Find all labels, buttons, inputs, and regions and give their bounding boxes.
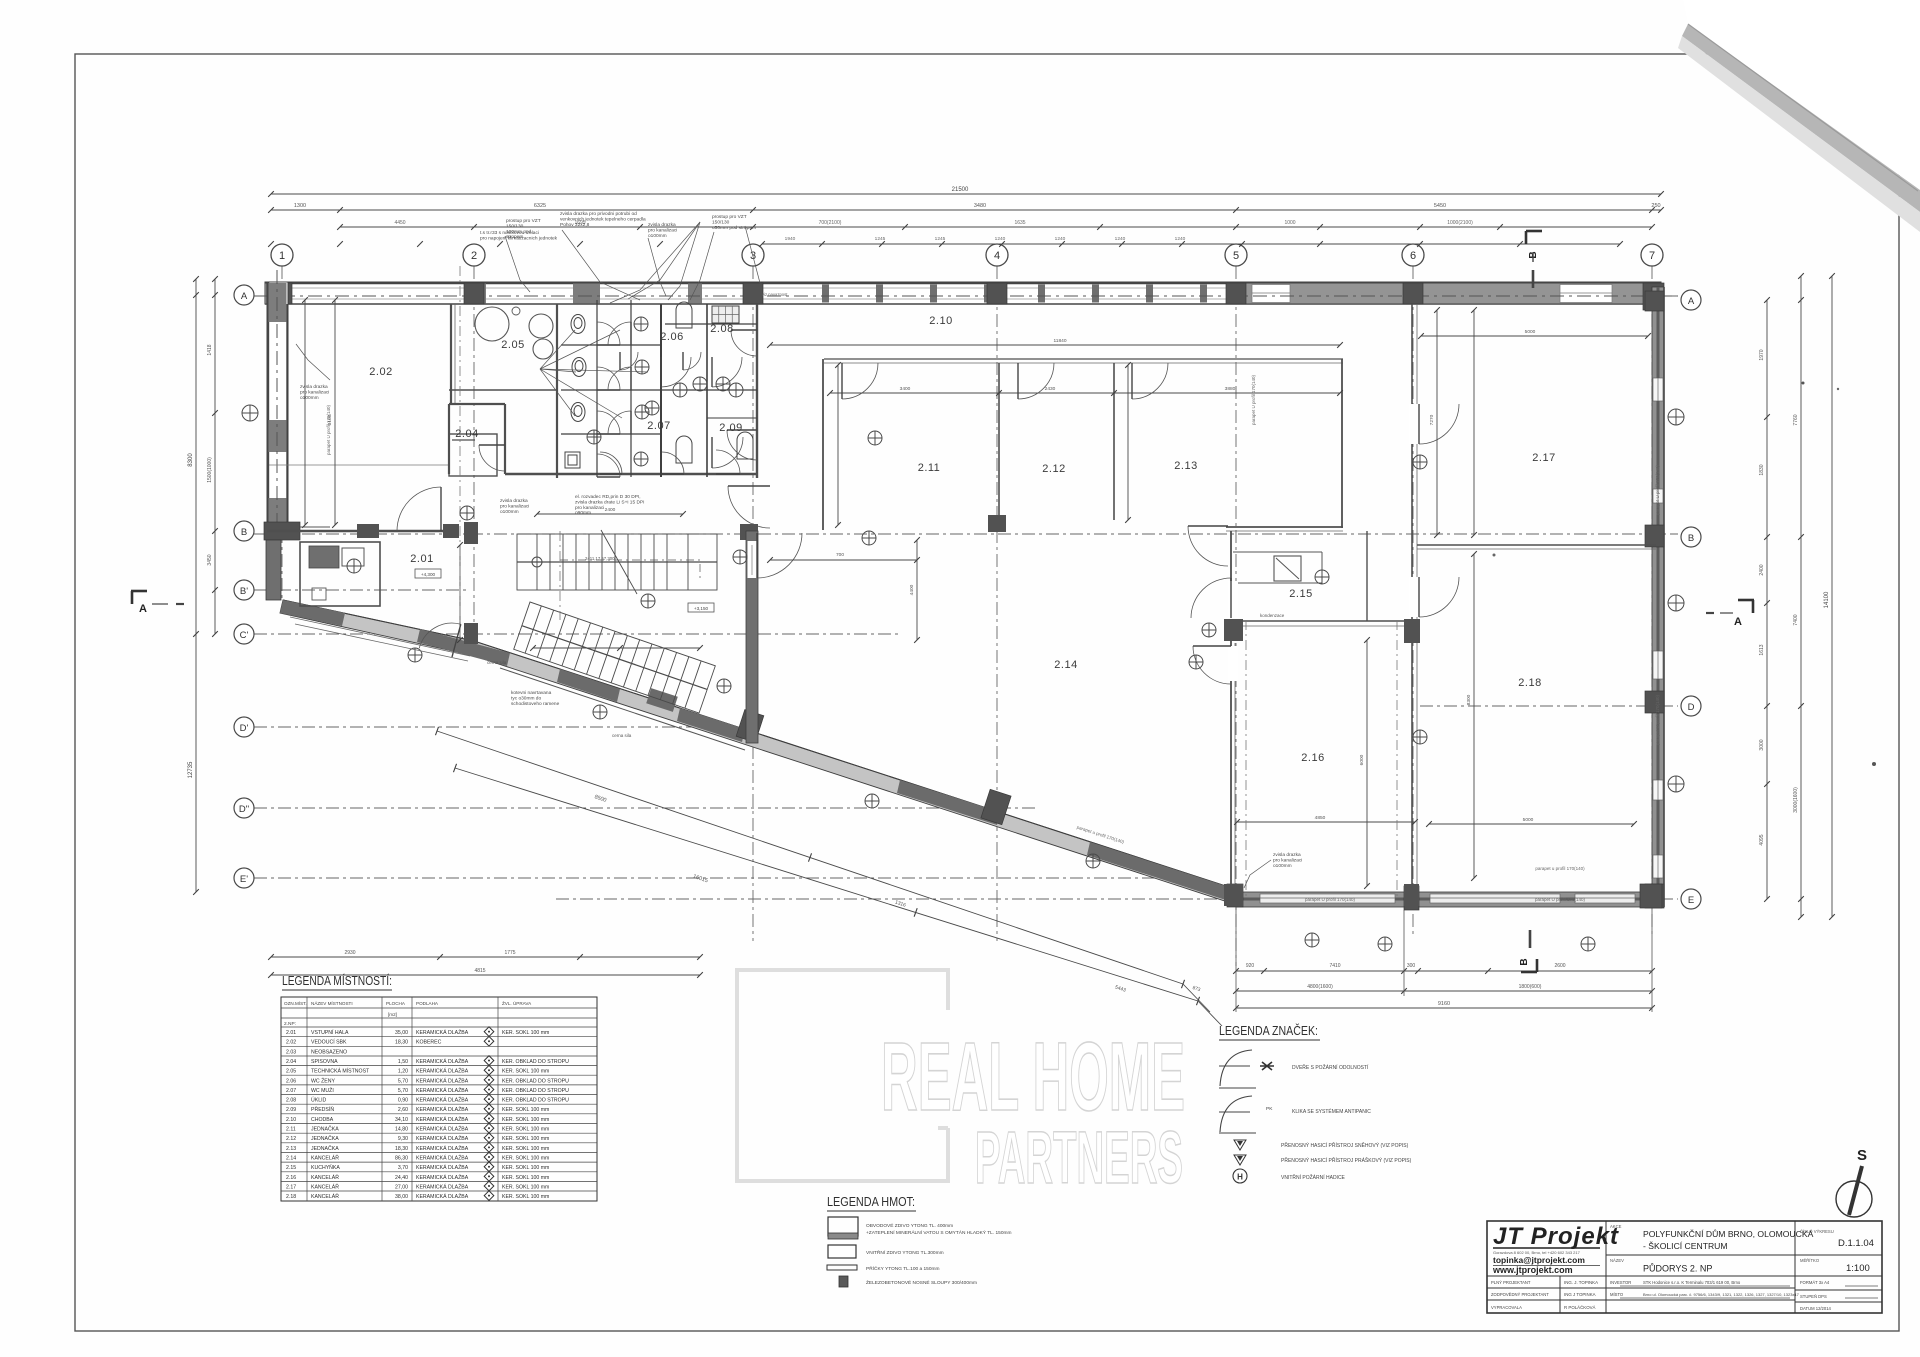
svg-text:KER. OBKLAD DO STROPU: KER. OBKLAD DO STROPU — [502, 1078, 569, 1084]
svg-text:o100mm: o100mm — [300, 395, 319, 401]
svg-text:KER. SOKL 100 mm: KER. SOKL 100 mm — [502, 1030, 549, 1036]
svg-text:1,20: 1,20 — [398, 1069, 408, 1075]
svg-text:86,30: 86,30 — [395, 1155, 408, 1161]
svg-text:zvisla drazka: zvisla drazka — [1273, 852, 1301, 858]
svg-text:2.06: 2.06 — [660, 331, 683, 343]
svg-text:FORMÁT 3x A4: FORMÁT 3x A4 — [1800, 1280, 1830, 1285]
svg-text:2.10: 2.10 — [286, 1117, 296, 1123]
svg-text:KER. SOKL 100 mm: KER. SOKL 100 mm — [502, 1136, 549, 1142]
svg-text:2.13: 2.13 — [1174, 460, 1197, 472]
svg-text:D": D" — [239, 804, 249, 815]
svg-text:AKCE: AKCE — [1610, 1224, 1622, 1229]
svg-text:pro kanalizaci: pro kanalizaci — [1273, 857, 1302, 863]
svg-text:2.09: 2.09 — [719, 422, 742, 434]
svg-text:C': C' — [240, 630, 249, 641]
svg-text:D: D — [1688, 702, 1695, 713]
svg-text:A: A — [139, 603, 147, 615]
svg-text:B: B — [1519, 958, 1530, 965]
svg-text:B: B — [1688, 533, 1694, 544]
svg-text:KER. OBKLAD DO STROPU: KER. OBKLAD DO STROPU — [502, 1098, 569, 1104]
svg-text:3000: 3000 — [1759, 739, 1765, 750]
svg-text:2.NP:: 2.NP: — [284, 1021, 296, 1027]
svg-text:1635: 1635 — [1014, 220, 1025, 226]
svg-text:Brno ul. Olomoucká parc. č. 97: Brno ul. Olomoucká parc. č. 9756/6, 1343… — [1643, 1292, 1800, 1297]
svg-text:KERAMICKÁ DLAŽBA: KERAMICKÁ DLAŽBA — [416, 1182, 469, 1190]
svg-text:kondenzace: kondenzace — [1260, 613, 1285, 618]
svg-text:KERAMICKÁ DLAŽBA: KERAMICKÁ DLAŽBA — [416, 1144, 469, 1152]
svg-text:5: 5 — [1233, 250, 1239, 262]
svg-text:0,90: 0,90 — [398, 1098, 408, 1104]
svg-text:KERAMICKÁ DLAŽBA: KERAMICKÁ DLAŽBA — [416, 1134, 469, 1142]
svg-text:2411,17,57,300: 2411,17,57,300 — [585, 556, 615, 561]
svg-text:4800(1600): 4800(1600) — [1307, 984, 1333, 990]
svg-text:2.04: 2.04 — [286, 1059, 296, 1065]
svg-text:5000: 5000 — [1523, 817, 1534, 823]
svg-text:2.01: 2.01 — [410, 553, 433, 565]
svg-text:5,70: 5,70 — [398, 1078, 408, 1084]
svg-text:parapet U profil 170(140): parapet U profil 170(140) — [1655, 694, 1660, 745]
svg-text:KER. SOKL 100 mm: KER. SOKL 100 mm — [502, 1117, 549, 1123]
svg-text:5000: 5000 — [1525, 329, 1536, 335]
svg-text:+ZATEPLENÍ MINERÁLNÍ VATOU S O: +ZATEPLENÍ MINERÁLNÍ VATOU S OMYTÁN HLAD… — [866, 1229, 1012, 1236]
svg-text:2.10: 2.10 — [929, 315, 952, 327]
svg-text:1,50: 1,50 — [398, 1059, 408, 1065]
svg-text:2.04: 2.04 — [455, 428, 478, 440]
svg-text:DVEŘE S POŽÁRNÍ ODOLNOSTÍ: DVEŘE S POŽÁRNÍ ODOLNOSTÍ — [1292, 1063, 1369, 1071]
svg-text:S: S — [1857, 1147, 1867, 1164]
svg-text:viz.navaznost: viz.navaznost — [762, 292, 788, 297]
svg-text:6: 6 — [1410, 250, 1416, 262]
svg-text:4: 4 — [994, 250, 1000, 262]
svg-text:7270: 7270 — [1429, 414, 1435, 425]
svg-text:R POLÁČKOVÁ: R POLÁČKOVÁ — [1564, 1305, 1596, 1310]
svg-text:14,80: 14,80 — [395, 1127, 408, 1133]
svg-text:6000: 6000 — [1359, 754, 1365, 765]
svg-text:11840: 11840 — [1054, 338, 1067, 344]
svg-text:2.18: 2.18 — [286, 1194, 296, 1200]
svg-text:7400: 7400 — [1793, 614, 1799, 625]
svg-text:KER. SOKL 100 mm: KER. SOKL 100 mm — [502, 1146, 549, 1152]
svg-text:INVESTOR: INVESTOR — [1610, 1280, 1631, 1285]
svg-text:A: A — [241, 291, 248, 302]
svg-text:+4,300: +4,300 — [421, 572, 436, 577]
svg-text:1240: 1240 — [1115, 236, 1126, 242]
svg-text:2.05: 2.05 — [286, 1069, 296, 1075]
svg-text:JEDNAČKA: JEDNAČKA — [311, 1126, 339, 1133]
svg-text:zvisla drazka: zvisla drazka — [648, 222, 676, 228]
svg-text:1:100: 1:100 — [1846, 1263, 1870, 1274]
svg-text:2.11: 2.11 — [918, 462, 941, 474]
svg-text:D': D' — [240, 723, 249, 734]
svg-text:STK Hodonice s.r.o. K Termina: STK Hodonice s.r.o. K Terminalu 703/1 61… — [1643, 1280, 1741, 1285]
svg-text:VSTUPNÍ HALA: VSTUPNÍ HALA — [311, 1029, 349, 1036]
svg-text:NÁZEV: NÁZEV — [1610, 1258, 1624, 1263]
svg-text:150/130: 150/130 — [712, 219, 730, 225]
svg-text:o100mm: o100mm — [1273, 863, 1292, 869]
svg-text:2.16: 2.16 — [286, 1175, 296, 1181]
svg-text:2.15: 2.15 — [286, 1165, 296, 1171]
svg-text:4095: 4095 — [1759, 834, 1765, 845]
svg-text:3,70: 3,70 — [398, 1165, 408, 1171]
svg-text:pro kanalizaci: pro kanalizaci — [648, 227, 677, 233]
svg-text:1000: 1000 — [1284, 220, 1295, 226]
svg-text:1970: 1970 — [1759, 349, 1765, 360]
svg-text:7: 7 — [1649, 250, 1655, 262]
svg-text:MÍSTO: MÍSTO — [1610, 1292, 1624, 1297]
svg-text:ÚKLID: ÚKLID — [311, 1097, 327, 1104]
svg-text:1240: 1240 — [1055, 236, 1066, 242]
svg-text:18,30: 18,30 — [395, 1146, 408, 1152]
svg-text:2.18: 2.18 — [1518, 677, 1541, 689]
svg-text:POLYFUNKČNÍ DŮM BRNO, OLOMOUCK: POLYFUNKČNÍ DŮM BRNO, OLOMOUCKÁ — [1643, 1228, 1814, 1239]
svg-text:1240: 1240 — [1175, 236, 1186, 242]
svg-text:1: 1 — [279, 250, 285, 262]
svg-text:PŘENOSNÝ HASICÍ PŘÍSTROJ PRÁŠK: PŘENOSNÝ HASICÍ PŘÍSTROJ PRÁŠKOVÝ (VIZ P… — [1281, 1156, 1412, 1164]
svg-text:KERAMICKÁ DLAŽBA: KERAMICKÁ DLAŽBA — [416, 1086, 469, 1094]
svg-text:topinka@jtprojekt.com: topinka@jtprojekt.com — [1493, 1255, 1585, 1265]
svg-text:2.17: 2.17 — [1532, 452, 1555, 464]
svg-text:2.07: 2.07 — [647, 420, 670, 432]
svg-text:KERAMICKÁ DLAŽBA: KERAMICKÁ DLAŽBA — [416, 1125, 469, 1133]
svg-text:3450: 3450 — [207, 554, 213, 565]
svg-text:DATUM 12/2014: DATUM 12/2014 — [1800, 1306, 1832, 1311]
svg-text:250: 250 — [1651, 203, 1660, 209]
svg-text:KER. SOKL 100 mm: KER. SOKL 100 mm — [502, 1175, 549, 1181]
svg-text:2.17: 2.17 — [286, 1184, 296, 1190]
svg-text:1240: 1240 — [995, 236, 1006, 242]
svg-text:prostup pro VZT: prostup pro VZT — [712, 214, 747, 220]
svg-text:zvisla drazka drate Li S+i 15: zvisla drazka drate Li S+i 15 DPI — [575, 499, 644, 505]
svg-text:WC MUŽI: WC MUŽI — [311, 1086, 334, 1094]
svg-text:2.09: 2.09 — [286, 1107, 296, 1113]
svg-text:8300: 8300 — [1466, 694, 1472, 705]
svg-text:LEGENDA ZNAČEK:: LEGENDA ZNAČEK: — [1219, 1023, 1318, 1038]
svg-text:2400: 2400 — [1759, 564, 1765, 575]
svg-text:7410: 7410 — [1329, 963, 1340, 969]
svg-text:150/130: 150/130 — [506, 223, 524, 229]
svg-text:CHODBA: CHODBA — [311, 1117, 334, 1123]
svg-text:PLOCHA: PLOCHA — [386, 1001, 406, 1006]
svg-text:2.08: 2.08 — [286, 1098, 296, 1104]
svg-text:KERAMICKÁ DLAŽBA: KERAMICKÁ DLAŽBA — [416, 1057, 469, 1065]
svg-text:zvisla drazka: zvisla drazka — [300, 384, 328, 390]
svg-text:2.08: 2.08 — [710, 323, 733, 335]
svg-text:7760: 7760 — [1793, 414, 1799, 425]
svg-text:5450: 5450 — [1434, 203, 1446, 209]
svg-text:cerna sila: cerna sila — [487, 660, 507, 665]
svg-text:PK: PK — [1266, 1106, 1273, 1112]
svg-text:parapet U profil 170(140): parapet U profil 170(140) — [326, 404, 331, 455]
svg-text:zvisla drazka pro privodni pot: zvisla drazka pro privodni potrubi od — [560, 211, 637, 217]
svg-text:3400: 3400 — [900, 386, 911, 392]
svg-text:pro kanalizaci: pro kanalizaci — [300, 389, 329, 395]
svg-text:TECHNICKÁ MÍSTNOST: TECHNICKÁ MÍSTNOST — [311, 1068, 370, 1075]
svg-text:REAL HOME: REAL HOME — [881, 1022, 1185, 1131]
svg-text:parapet U profil 170(140): parapet U profil 170(140) — [1535, 897, 1586, 902]
svg-text:KER. SOKL 100 mm: KER. SOKL 100 mm — [502, 1184, 549, 1190]
svg-text:35,00: 35,00 — [395, 1030, 408, 1036]
svg-text:KANCELÁŘ: KANCELÁŘ — [311, 1192, 339, 1200]
svg-text:PODLAHA: PODLAHA — [416, 1001, 439, 1006]
svg-text:3000(1600): 3000(1600) — [1793, 787, 1799, 813]
svg-text:H: H — [1237, 1173, 1243, 1182]
svg-text:parapet u profil 170(140): parapet u profil 170(140) — [1535, 866, 1585, 871]
svg-text:KUCHYŇKA: KUCHYŇKA — [311, 1164, 340, 1171]
svg-text:1800(600): 1800(600) — [1519, 984, 1542, 990]
svg-text:2.14: 2.14 — [286, 1155, 296, 1161]
svg-text:B: B — [241, 527, 247, 538]
svg-text:stropem: stropem — [506, 234, 523, 240]
svg-text:prostup pro VZT: prostup pro VZT — [506, 218, 541, 224]
svg-text:www.jtprojekt.com: www.jtprojekt.com — [1492, 1265, 1573, 1275]
svg-text:MĚŘÍTKO: MĚŘÍTKO — [1800, 1258, 1820, 1263]
svg-text:2.15: 2.15 — [1289, 588, 1312, 600]
svg-text:KANCELÁŘ: KANCELÁŘ — [311, 1153, 339, 1161]
svg-text:KER. SOKL 100 mm: KER. SOKL 100 mm — [502, 1194, 549, 1200]
svg-text:[m2]: [m2] — [388, 1012, 397, 1017]
svg-text:JEDNAČKA: JEDNAČKA — [311, 1135, 339, 1142]
svg-text:KERAMICKÁ DLAŽBA: KERAMICKÁ DLAŽBA — [416, 1153, 469, 1161]
svg-text:LEGENDA MÍSTNOSTÍ:: LEGENDA MÍSTNOSTÍ: — [282, 973, 392, 988]
svg-text:KERAMICKÁ DLAŽBA: KERAMICKÁ DLAŽBA — [416, 1192, 469, 1200]
svg-text:PŮDORYS 2. NP: PŮDORYS 2. NP — [1643, 1263, 1712, 1274]
svg-text:D.1.1.04: D.1.1.04 — [1838, 1238, 1874, 1249]
svg-text:PARTNERS: PARTNERS — [975, 1116, 1183, 1199]
svg-text:2.12: 2.12 — [1042, 463, 1065, 475]
svg-text:KERAMICKÁ DLAŽBA: KERAMICKÁ DLAŽBA — [416, 1163, 469, 1171]
svg-text:WC ŽENY: WC ŽENY — [311, 1076, 335, 1084]
svg-text:4815: 4815 — [474, 968, 485, 974]
svg-text:A: A — [1734, 616, 1742, 628]
svg-text:2.06: 2.06 — [286, 1078, 296, 1084]
svg-text:1613: 1613 — [1759, 644, 1765, 655]
svg-text:34,10: 34,10 — [395, 1117, 408, 1123]
svg-text:2: 2 — [471, 250, 477, 262]
svg-text:2.14: 2.14 — [1054, 659, 1077, 671]
svg-text:KLIKA SE SYSTÉMEM ANTIPANIC: KLIKA SE SYSTÉMEM ANTIPANIC — [1292, 1108, 1371, 1115]
svg-text:o90mm: o90mm — [575, 510, 591, 516]
svg-text:KERAMICKÁ DLAŽBA: KERAMICKÁ DLAŽBA — [416, 1105, 469, 1113]
svg-text:1245: 1245 — [935, 236, 946, 242]
svg-text:KER. SOKL 100 mm: KER. SOKL 100 mm — [502, 1165, 549, 1171]
svg-text:parapet U profil 170(140): parapet U profil 170(140) — [1305, 897, 1356, 902]
svg-text:ING J TOPINKA: ING J TOPINKA — [1564, 1292, 1596, 1297]
svg-text:+3,150: +3,150 — [694, 606, 709, 611]
svg-text:8300: 8300 — [188, 453, 194, 467]
svg-text:o100mm: o100mm — [500, 509, 519, 515]
svg-text:700: 700 — [836, 552, 844, 558]
svg-text:2,60: 2,60 — [398, 1107, 408, 1113]
svg-text:PLNÝ PROJEKTANT: PLNÝ PROJEKTANT — [1491, 1280, 1531, 1285]
svg-text:KERAMICKÁ DLAŽBA: KERAMICKÁ DLAŽBA — [416, 1067, 469, 1075]
svg-text:38,00: 38,00 — [395, 1194, 408, 1200]
svg-text:ING. J. TOPINKA: ING. J. TOPINKA — [1564, 1280, 1598, 1285]
svg-text:1000(2100): 1000(2100) — [1447, 220, 1473, 226]
svg-text:4850: 4850 — [1315, 815, 1326, 821]
svg-text:1245: 1245 — [875, 236, 886, 242]
svg-text:KOBEREC: KOBEREC — [416, 1040, 442, 1046]
svg-text:3880: 3880 — [1225, 386, 1236, 392]
svg-text:2.03: 2.03 — [286, 1049, 296, 1055]
svg-text:9160: 9160 — [1438, 1001, 1450, 1007]
svg-text:A: A — [1688, 296, 1695, 307]
svg-text:1940: 1940 — [785, 236, 796, 242]
svg-text:KER. SOKL 100 mm: KER. SOKL 100 mm — [502, 1069, 549, 1075]
svg-text:KERAMICKÁ DLAŽBA: KERAMICKÁ DLAŽBA — [416, 1096, 469, 1104]
svg-text:KER. SOKL 100 mm: KER. SOKL 100 mm — [502, 1155, 549, 1161]
svg-text:1775: 1775 — [504, 950, 515, 956]
svg-text:OZN.MÍST.: OZN.MÍST. — [284, 1000, 307, 1006]
svg-text:OBVODOVÉ ZDIVO YTONG TL. 400mm: OBVODOVÉ ZDIVO YTONG TL. 400mm — [866, 1222, 953, 1229]
svg-text:JT Projekt: JT Projekt — [1493, 1223, 1619, 1250]
svg-text:KER. OBKLAD DO STROPU: KER. OBKLAD DO STROPU — [502, 1088, 569, 1094]
svg-text:KER. OBKLAD DO STROPU: KER. OBKLAD DO STROPU — [502, 1059, 569, 1065]
svg-text:parapet U profil 170(140): parapet U profil 170(140) — [1251, 374, 1256, 425]
svg-text:2430: 2430 — [1045, 386, 1056, 392]
svg-text:kotevni navrtavana: kotevni navrtavana — [511, 690, 552, 696]
svg-text:E': E' — [240, 874, 248, 885]
svg-text:pro kanalizaci: pro kanalizaci — [575, 505, 604, 511]
svg-text:KER. SOKL 100 mm: KER. SOKL 100 mm — [502, 1127, 549, 1133]
svg-text:schodistoveho ramene: schodistoveho ramene — [511, 701, 560, 707]
svg-text:SPISOVNA: SPISOVNA — [311, 1059, 338, 1065]
svg-text:NÁZEV MÍSTNOSTI: NÁZEV MÍSTNOSTI — [311, 1000, 353, 1006]
svg-text:KANCELÁŘ: KANCELÁŘ — [311, 1182, 339, 1190]
svg-text:KERAMICKÁ DLAŽBA: KERAMICKÁ DLAŽBA — [416, 1076, 469, 1084]
svg-text:Pohov 32x2,8: Pohov 32x2,8 — [560, 222, 590, 228]
svg-text:21500: 21500 — [952, 187, 969, 193]
svg-text:pro kanalizaci: pro kanalizaci — [500, 503, 529, 509]
svg-text:o100mm: o100mm — [648, 233, 667, 239]
svg-text:ZODPOVĚDNÝ PROJEKTANT: ZODPOVĚDNÝ PROJEKTANT — [1491, 1292, 1549, 1297]
svg-text:2.02: 2.02 — [369, 366, 392, 378]
svg-text:5,70: 5,70 — [398, 1088, 408, 1094]
svg-text:KERAMICKÁ DLAŽBA: KERAMICKÁ DLAŽBA — [416, 1028, 469, 1036]
svg-text:2600: 2600 — [1554, 963, 1565, 969]
svg-text:tyc o30mm do: tyc o30mm do — [511, 695, 541, 701]
svg-text:1500(1000): 1500(1000) — [207, 457, 213, 483]
svg-text:KANCELÁŘ: KANCELÁŘ — [311, 1173, 339, 1181]
svg-text:PŘEDSÍŇ: PŘEDSÍŇ — [311, 1105, 334, 1113]
svg-text:2.11: 2.11 — [286, 1127, 296, 1133]
svg-text:ŽVL. ÚPRAVA: ŽVL. ÚPRAVA — [502, 999, 532, 1006]
svg-text:920: 920 — [1246, 963, 1255, 969]
svg-text:3480: 3480 — [974, 203, 986, 209]
svg-text:KER. SOKL 100 mm: KER. SOKL 100 mm — [502, 1107, 549, 1113]
svg-text:6325: 6325 — [534, 203, 546, 209]
svg-text:100mm pod: 100mm pod — [506, 229, 532, 235]
svg-text:el. rozvadec RD,prin D 30 DPI,: el. rozvadec RD,prin D 30 DPI, — [575, 494, 641, 500]
svg-text:parapet U profil 170(140): parapet U profil 170(140) — [1655, 464, 1660, 515]
svg-text:JEDNAČKA: JEDNAČKA — [311, 1145, 339, 1152]
svg-text:4450: 4450 — [394, 220, 405, 226]
svg-text:9,30: 9,30 — [398, 1136, 408, 1142]
svg-text:2.01: 2.01 — [286, 1030, 296, 1036]
svg-text:14100: 14100 — [1824, 591, 1830, 608]
svg-text:27,00: 27,00 — [395, 1184, 408, 1190]
svg-text:KERAMICKÁ DLAŽBA: KERAMICKÁ DLAŽBA — [416, 1115, 469, 1123]
svg-text:2.05: 2.05 — [501, 339, 524, 351]
svg-text:2.12: 2.12 — [286, 1136, 296, 1142]
svg-text:NEOBSAZENO: NEOBSAZENO — [311, 1049, 347, 1055]
svg-text:PŘENOSNÝ HASICÍ PŘÍSTROJ SNĚHO: PŘENOSNÝ HASICÍ PŘÍSTROJ SNĚHOVÝ (VIZ PO… — [1281, 1141, 1409, 1149]
svg-text:- ŠKOLICÍ CENTRUM: - ŠKOLICÍ CENTRUM — [1643, 1241, 1728, 1251]
svg-text:2930: 2930 — [344, 950, 355, 956]
svg-text:18,30: 18,30 — [395, 1040, 408, 1046]
svg-text:2.07: 2.07 — [286, 1088, 296, 1094]
svg-text:24,40: 24,40 — [395, 1175, 408, 1181]
svg-text:B': B' — [240, 586, 248, 597]
svg-text:4400: 4400 — [909, 584, 915, 595]
svg-text:zvisla drazka: zvisla drazka — [500, 498, 528, 504]
svg-text:12735: 12735 — [188, 761, 194, 778]
svg-text:LEGENDA HMOT:: LEGENDA HMOT: — [827, 1195, 915, 1209]
svg-text:cerna sila: cerna sila — [612, 733, 632, 738]
svg-text:KERAMICKÁ DLAŽBA: KERAMICKÁ DLAŽBA — [416, 1173, 469, 1181]
svg-text:700(2100): 700(2100) — [819, 220, 842, 226]
svg-text:1418: 1418 — [207, 344, 213, 355]
svg-text:E: E — [1688, 895, 1694, 906]
svg-text:1830: 1830 — [1759, 464, 1765, 475]
svg-text:o50mm pod stropem: o50mm pod stropem — [712, 225, 756, 231]
svg-text:2.16: 2.16 — [1301, 752, 1324, 764]
svg-text:VEDOUCÍ SBK: VEDOUCÍ SBK — [311, 1039, 347, 1046]
svg-text:STUPEŇ DPS: STUPEŇ DPS — [1800, 1294, 1827, 1299]
svg-text:VNITŘNÍ POŽÁRNÍ HADICE: VNITŘNÍ POŽÁRNÍ HADICE — [1281, 1173, 1346, 1181]
svg-text:2400: 2400 — [605, 507, 616, 513]
svg-text:1300: 1300 — [294, 203, 306, 209]
svg-text:venkovnich jednotek tepelneho: venkovnich jednotek tepelneho cerpadla — [560, 216, 646, 222]
svg-text:ČÍSLO VÝKRESU: ČÍSLO VÝKRESU — [1800, 1229, 1834, 1234]
svg-text:300: 300 — [1407, 963, 1416, 969]
svg-text:VYPRACOVALA: VYPRACOVALA — [1491, 1305, 1522, 1310]
svg-text:2.02: 2.02 — [286, 1040, 296, 1046]
svg-text:2.13: 2.13 — [286, 1146, 296, 1152]
